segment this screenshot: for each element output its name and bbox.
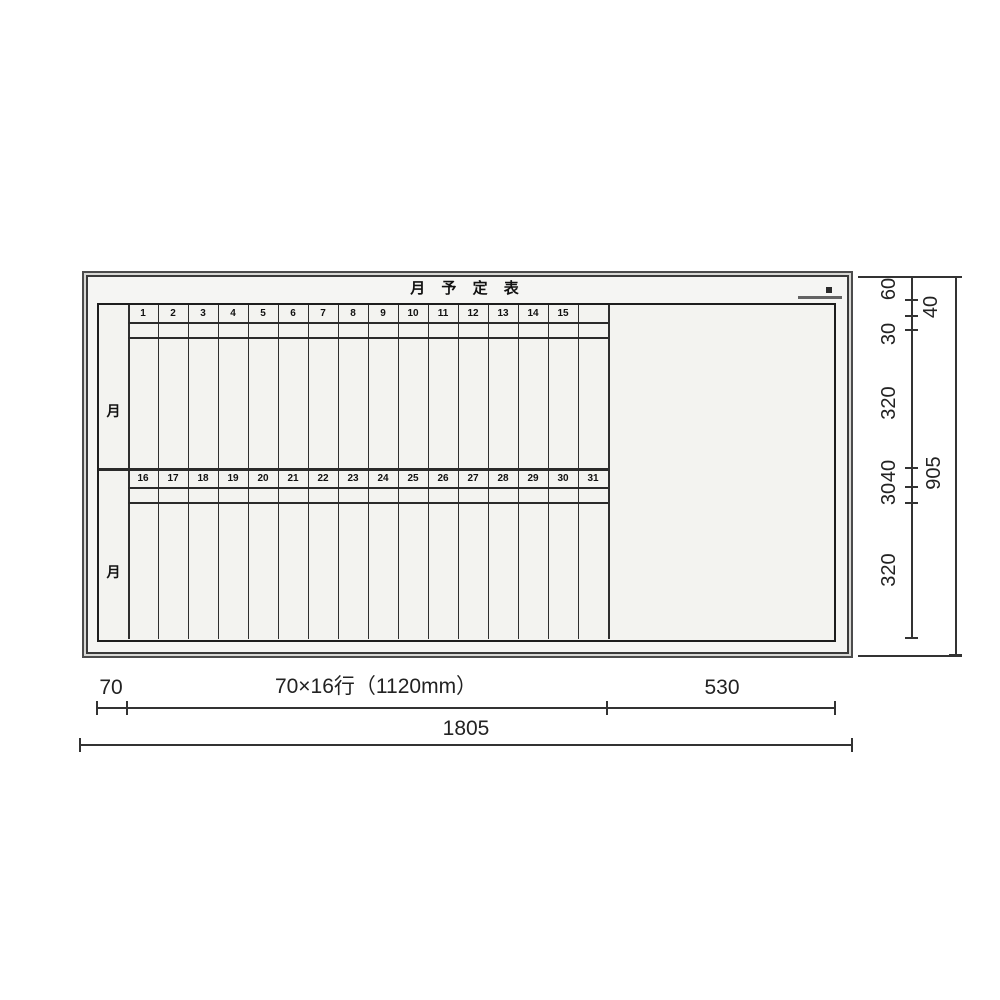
day-cell-bottom: 25	[398, 471, 428, 487]
dim-right-total-label: 905	[924, 438, 944, 508]
corner-underline-mark	[798, 296, 842, 299]
day-cell-bottom: 18	[188, 471, 218, 487]
day-cell-top: 2	[158, 305, 188, 322]
dim-tick	[905, 637, 918, 639]
dim-tick	[834, 701, 836, 715]
dim-tick	[79, 738, 81, 752]
dim-tick	[96, 701, 98, 715]
dim-tick	[606, 701, 608, 715]
day-cell-bottom: 22	[308, 471, 338, 487]
day-cell-bottom: 24	[368, 471, 398, 487]
dim-tick	[905, 329, 918, 331]
dim-tick	[126, 701, 128, 715]
dim-tick	[905, 502, 918, 504]
day-cell-top: 1	[128, 305, 158, 322]
day-cell-bottom: 26	[428, 471, 458, 487]
dim-tick	[905, 467, 918, 469]
day-cell-top: 13	[488, 305, 518, 322]
day-cell-bottom: 28	[488, 471, 518, 487]
month-label-bottom: 月	[99, 562, 128, 582]
grid-hline	[128, 487, 608, 489]
dim-line-right-inner	[911, 277, 913, 639]
day-cell-bottom: 17	[158, 471, 188, 487]
dim-tick	[905, 299, 918, 301]
day-cell-bottom: 19	[218, 471, 248, 487]
dim-tick	[851, 738, 853, 752]
corner-mark-icon	[826, 287, 832, 293]
dim-line-right-outer	[955, 277, 957, 656]
day-cell-top: 6	[278, 305, 308, 322]
calendar-grid: 月 月 123456789101112131415161718192021222…	[97, 303, 836, 642]
grid-vline	[608, 305, 610, 639]
dim-right-label: 40	[921, 272, 941, 342]
day-cell-bottom: 27	[458, 471, 488, 487]
dim-bottom-label: 70	[86, 676, 136, 700]
day-cell-top: 5	[248, 305, 278, 322]
dim-right-label: 320	[879, 368, 899, 438]
day-cell-bottom: 23	[338, 471, 368, 487]
dim-line-bottom-2	[80, 744, 853, 746]
dim-bottom-label: 530	[692, 676, 752, 700]
dim-bottom-total-label: 1805	[416, 717, 516, 741]
day-cell-top: 4	[218, 305, 248, 322]
day-cell-top: 15	[548, 305, 578, 322]
dim-right-label: 30	[879, 459, 899, 529]
day-cell-top: 9	[368, 305, 398, 322]
dim-tick	[905, 315, 918, 317]
day-cell-bottom: 16	[128, 471, 158, 487]
day-cell-top: 3	[188, 305, 218, 322]
day-cell-top: 12	[458, 305, 488, 322]
day-cell-bottom: 29	[518, 471, 548, 487]
dim-tick	[905, 486, 918, 488]
dim-tick	[949, 276, 962, 278]
day-cell-bottom: 30	[548, 471, 578, 487]
day-cell-top: 10	[398, 305, 428, 322]
day-cell-top: 8	[338, 305, 368, 322]
day-cell-top	[578, 305, 608, 322]
extension-line-bottom	[858, 655, 962, 657]
grid-hline	[128, 502, 608, 504]
dim-bottom-label: 70×16行（1120mm）	[226, 675, 526, 699]
day-cell-bottom: 21	[278, 471, 308, 487]
day-cell-top: 7	[308, 305, 338, 322]
day-cell-bottom: 20	[248, 471, 278, 487]
dim-right-label: 30	[879, 299, 899, 369]
grid-hline	[128, 337, 608, 339]
dim-right-label: 320	[879, 535, 899, 605]
dim-tick	[949, 654, 962, 656]
dim-tick	[905, 276, 918, 278]
day-cell-bottom: 31	[578, 471, 608, 487]
month-label-top: 月	[99, 401, 128, 421]
board-title: 月 予 定 表	[86, 280, 849, 298]
whiteboard-spec-drawing: 月 予 定 表 月 月 1234567891011121314151617181…	[0, 0, 1000, 1000]
grid-hline	[128, 322, 608, 324]
day-cell-top: 14	[518, 305, 548, 322]
day-cell-top: 11	[428, 305, 458, 322]
dim-line-bottom-1	[97, 707, 835, 709]
